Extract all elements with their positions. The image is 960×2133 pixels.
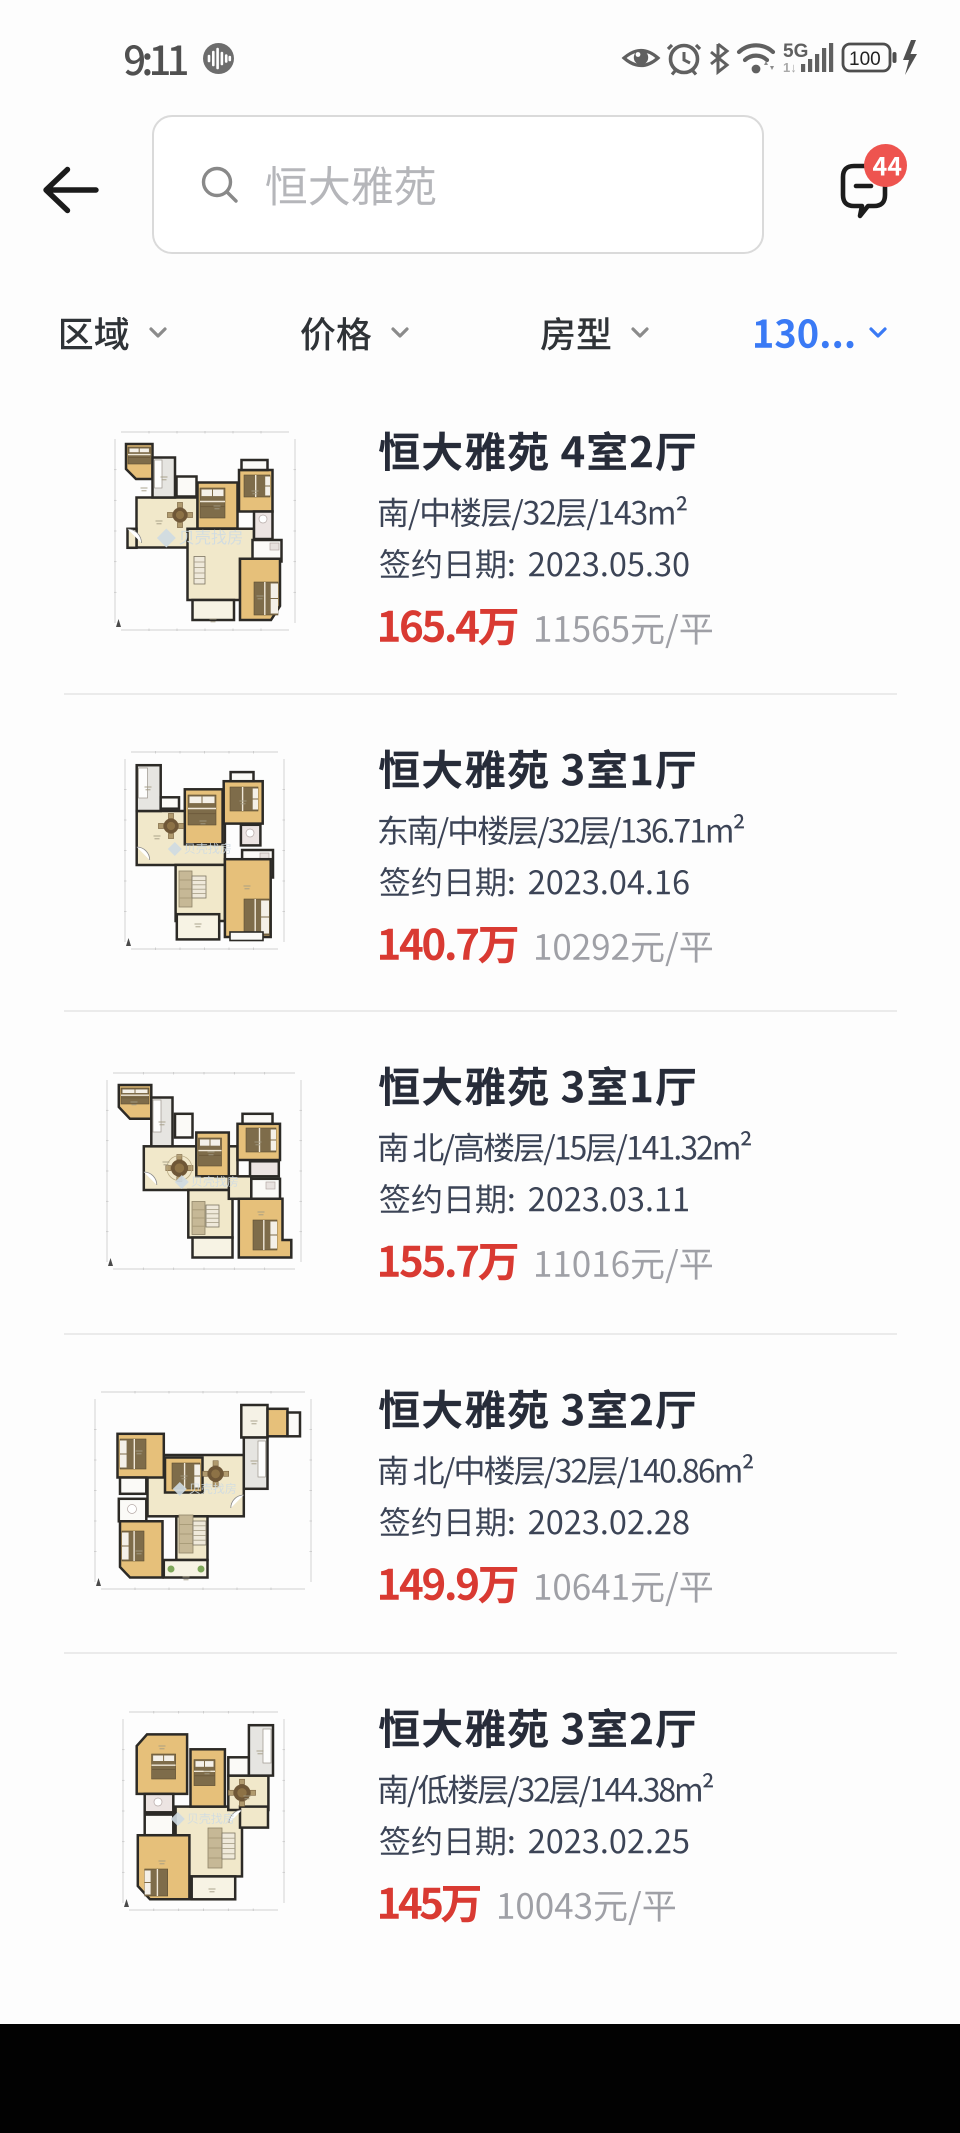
svg-text:5G: 5G (783, 41, 808, 62)
svg-text:100: 100 (849, 49, 881, 70)
svg-text:1↓: 1↓ (783, 60, 797, 75)
